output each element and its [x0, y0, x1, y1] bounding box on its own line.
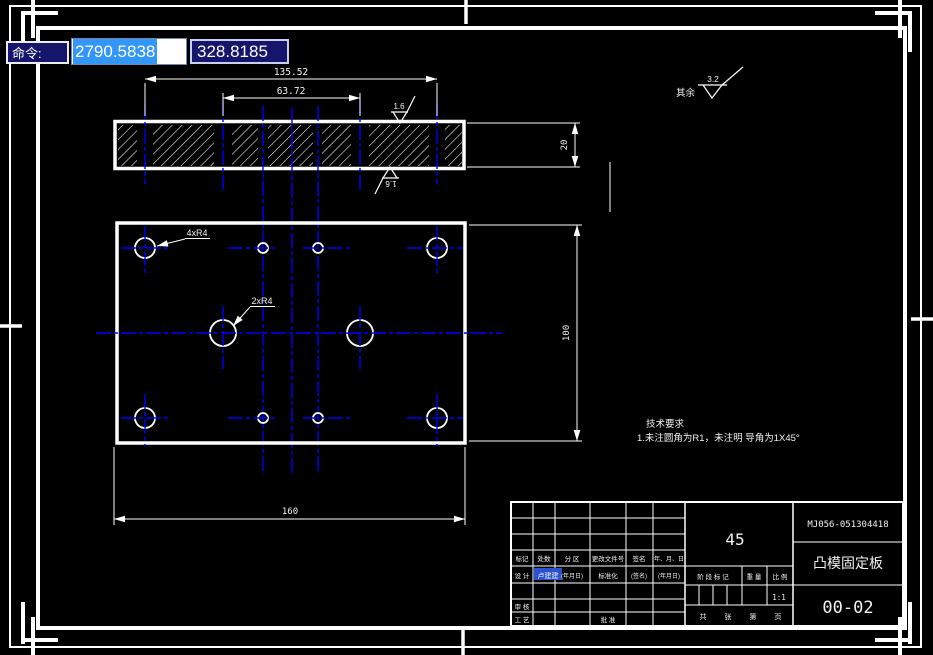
technical-notes: 技术要求 1.未注圆角为R1，未注明 导角为1X45°	[637, 418, 800, 444]
std-signature: (签名)	[631, 572, 647, 580]
scale-label: 比 例	[773, 572, 788, 581]
dim-thickness-20	[467, 123, 610, 212]
roughness-top-value: 1.6	[393, 102, 405, 111]
col-change-doc: 更改文件号	[592, 554, 625, 563]
cad-application-window: 135.52 63.72 20 1.6 1.6	[0, 0, 933, 655]
col-mark: 标记	[516, 554, 530, 563]
roughness-symbol-bottom: 1.6	[375, 167, 399, 194]
section-hatch	[118, 125, 462, 166]
footer-page: 页	[775, 613, 782, 621]
roughness-bottom-value: 1.6	[385, 179, 397, 188]
design-label: 设 计	[515, 571, 530, 580]
drawing-code: MJ056-051304418	[807, 520, 888, 530]
section-view: 135.52 63.72 20 1.6 1.6	[115, 67, 610, 473]
footer-sheets: 张	[725, 612, 732, 621]
designer-name[interactable]: 卢建建	[538, 571, 559, 580]
plan-view: 4xR4 2xR4 160 100	[96, 223, 582, 525]
notes-line1: 1.未注圆角为R1，未注明 导角为1X45°	[637, 432, 800, 444]
title-block: 标记 处数 分 区 更改文件号 签名 年、月、日 设 计 卢建建 (年月日) 标…	[511, 502, 903, 626]
plan-centerlines	[96, 226, 502, 446]
roughness-symbol-top: 1.6	[391, 96, 415, 123]
std-date: (年月日)	[658, 572, 680, 580]
dynamic-input-x[interactable]: 2790.5838	[71, 38, 187, 65]
col-date: 年、月、日	[654, 555, 684, 563]
notes-heading: 技术要求	[646, 418, 685, 430]
design-date: (年月日)	[561, 572, 583, 580]
dynamic-input-y[interactable]: 328.8185	[190, 39, 289, 64]
roughness-symbol-general: 3.2	[698, 67, 743, 98]
standardization-label: 标准化	[598, 571, 618, 580]
dim-width-text: 160	[282, 507, 298, 517]
dynamic-input-x-value[interactable]: 2790.5838	[73, 39, 157, 64]
title-block-texts: 标记 处数 分 区 更改文件号 签名 年、月、日 设 计 卢建建 (年月日) 标…	[515, 520, 889, 624]
inner-frame	[38, 28, 905, 628]
approve-label: 批 准	[601, 615, 616, 624]
sheet-number: 00-02	[822, 598, 873, 618]
dim-overall-text: 135.52	[274, 67, 308, 78]
label-center-holes: 2xR4	[233, 296, 275, 326]
command-prompt-label: 命令:	[6, 41, 69, 64]
footer-no: 第	[750, 612, 757, 621]
dim-inner-text: 63.72	[277, 86, 306, 97]
command-prompt-text: 命令:	[12, 43, 42, 62]
dynamic-input-y-value[interactable]: 328.8185	[197, 42, 268, 62]
weight-label: 重 量	[747, 573, 762, 581]
dim-height-text: 100	[562, 325, 572, 341]
center-holes-text: 2xR4	[251, 296, 272, 306]
corner-holes-text: 4xR4	[186, 228, 207, 238]
col-signature: 签名	[633, 554, 646, 563]
review-label: 审 核	[515, 602, 530, 611]
stage-label: 阶 段 标 记	[697, 572, 729, 581]
label-corner-holes: 4xR4	[157, 228, 210, 246]
general-roughness-value: 3.2	[707, 74, 719, 84]
part-name: 凸模固定板	[813, 555, 883, 571]
general-roughness: 其余 3.2	[676, 67, 743, 99]
material-value: 45	[725, 530, 744, 549]
scale-value: 1:1	[772, 593, 786, 602]
col-zone: 分 区	[565, 554, 580, 563]
drawing-canvas[interactable]: 135.52 63.72 20 1.6 1.6	[0, 0, 933, 655]
process-label: 工 艺	[515, 616, 530, 624]
col-count: 处数	[538, 554, 552, 563]
footer-total: 共	[700, 612, 707, 621]
general-roughness-prefix: 其余	[676, 87, 696, 99]
dim-thickness-text: 20	[560, 140, 570, 151]
